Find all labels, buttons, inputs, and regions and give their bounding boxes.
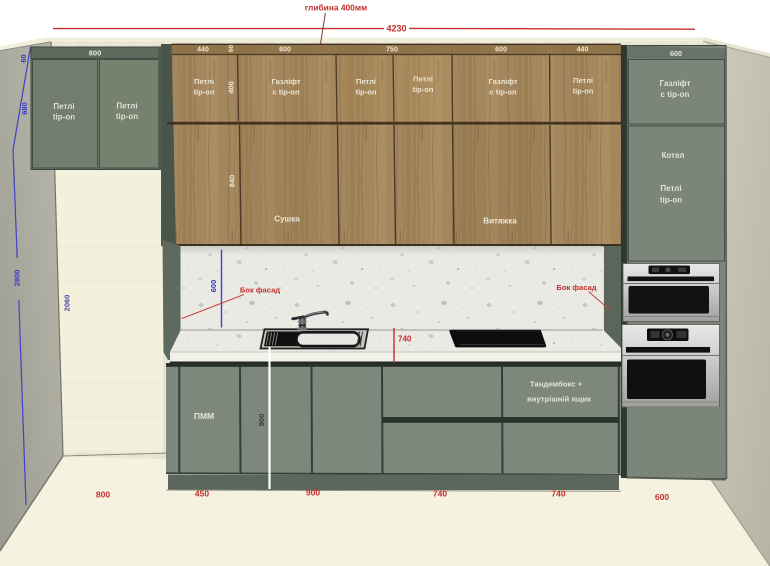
svg-text:740: 740: [433, 489, 447, 499]
svg-text:740: 740: [398, 335, 412, 344]
svg-text:tip-on: tip-on: [660, 196, 682, 205]
svg-text:tip-on: tip-on: [116, 112, 138, 121]
svg-text:с tip-on: с tip-on: [661, 90, 690, 99]
svg-text:60: 60: [19, 54, 28, 62]
svg-text:с tip-on: с tip-on: [272, 88, 299, 97]
svg-text:Петлі: Петлі: [573, 76, 593, 85]
svg-text:900: 900: [306, 488, 320, 498]
svg-text:Газліфт: Газліфт: [660, 79, 691, 88]
svg-text:Котел: Котел: [661, 151, 684, 160]
svg-text:внутрішній ящик: внутрішній ящик: [527, 395, 591, 404]
svg-text:Бок фасад: Бок фасад: [240, 286, 280, 295]
svg-text:800: 800: [96, 490, 110, 500]
svg-text:400: 400: [227, 81, 236, 94]
svg-text:600: 600: [209, 280, 218, 293]
svg-text:tip-on: tip-on: [573, 87, 594, 96]
svg-text:440: 440: [577, 47, 589, 54]
svg-text:900: 900: [257, 414, 266, 427]
svg-text:440: 440: [197, 47, 209, 54]
svg-text:ПММ: ПММ: [194, 411, 214, 421]
svg-text:600: 600: [495, 47, 507, 54]
svg-text:Петлі: Петлі: [194, 77, 214, 86]
svg-text:60: 60: [228, 45, 235, 53]
svg-text:Петлі: Петлі: [413, 75, 433, 84]
svg-text:Газліфт: Газліфт: [271, 77, 300, 86]
svg-text:tip-on: tip-on: [413, 85, 434, 94]
svg-text:Сушка: Сушка: [274, 215, 300, 224]
svg-text:Витяжка: Витяжка: [483, 217, 517, 226]
svg-text:600: 600: [655, 492, 669, 502]
svg-text:2060: 2060: [63, 295, 72, 312]
svg-text:2800: 2800: [13, 270, 22, 287]
svg-text:с tip-on: с tip-on: [489, 88, 516, 97]
svg-text:Петлі: Петлі: [53, 102, 74, 111]
svg-text:4230: 4230: [386, 24, 406, 34]
svg-text:Газліфт: Газліфт: [488, 77, 517, 86]
svg-text:Петлі: Петлі: [356, 77, 376, 86]
svg-text:800: 800: [89, 48, 102, 57]
svg-text:глибина 400мм: глибина 400мм: [305, 2, 367, 12]
svg-text:840: 840: [228, 175, 237, 188]
svg-text:tip-on: tip-on: [356, 88, 377, 97]
svg-text:tip-on: tip-on: [194, 88, 215, 97]
svg-text:450: 450: [195, 489, 209, 499]
svg-text:680: 680: [20, 102, 29, 115]
svg-text:600: 600: [279, 47, 291, 54]
svg-text:600: 600: [670, 49, 682, 58]
svg-text:Бок фасад: Бок фасад: [556, 283, 596, 292]
svg-text:750: 750: [386, 47, 398, 54]
svg-text:Петлі: Петлі: [116, 102, 137, 111]
svg-text:Тандембокс +: Тандембокс +: [530, 380, 583, 389]
svg-text:tip-on: tip-on: [53, 113, 75, 122]
svg-text:Петлі: Петлі: [660, 184, 681, 193]
svg-text:740: 740: [551, 489, 565, 499]
